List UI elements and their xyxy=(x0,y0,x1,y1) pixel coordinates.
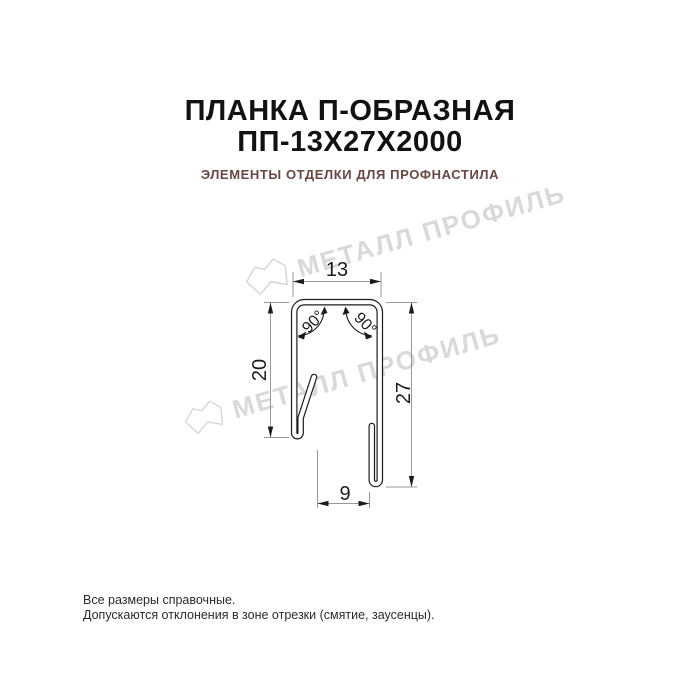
angle-right-label: 90° xyxy=(350,309,379,338)
page-title-line2: ПП-13Х27Х2000 xyxy=(0,127,700,158)
page-subtitle: ЭЛЕМЕНТЫ ОТДЕЛКИ ДЛЯ ПРОФНАСТИЛА xyxy=(0,167,700,182)
footer-notes: Все размеры справочные. Допускаются откл… xyxy=(83,593,435,623)
page-title-line1: ПЛАНКА П-ОБРАЗНАЯ xyxy=(0,96,700,127)
footer-note-2: Допускаются отклонения в зоне отрезки (с… xyxy=(83,608,435,623)
dim-bottom-width-label: 9 xyxy=(339,483,350,505)
dim-right-height-label: 27 xyxy=(393,382,415,404)
footer-note-1: Все размеры справочные. xyxy=(83,593,435,608)
header: ПЛАНКА П-ОБРАЗНАЯ ПП-13Х27Х2000 ЭЛЕМЕНТЫ… xyxy=(0,96,700,182)
dim-top-width-label: 13 xyxy=(326,259,348,281)
dim-left-height-label: 20 xyxy=(249,359,271,381)
